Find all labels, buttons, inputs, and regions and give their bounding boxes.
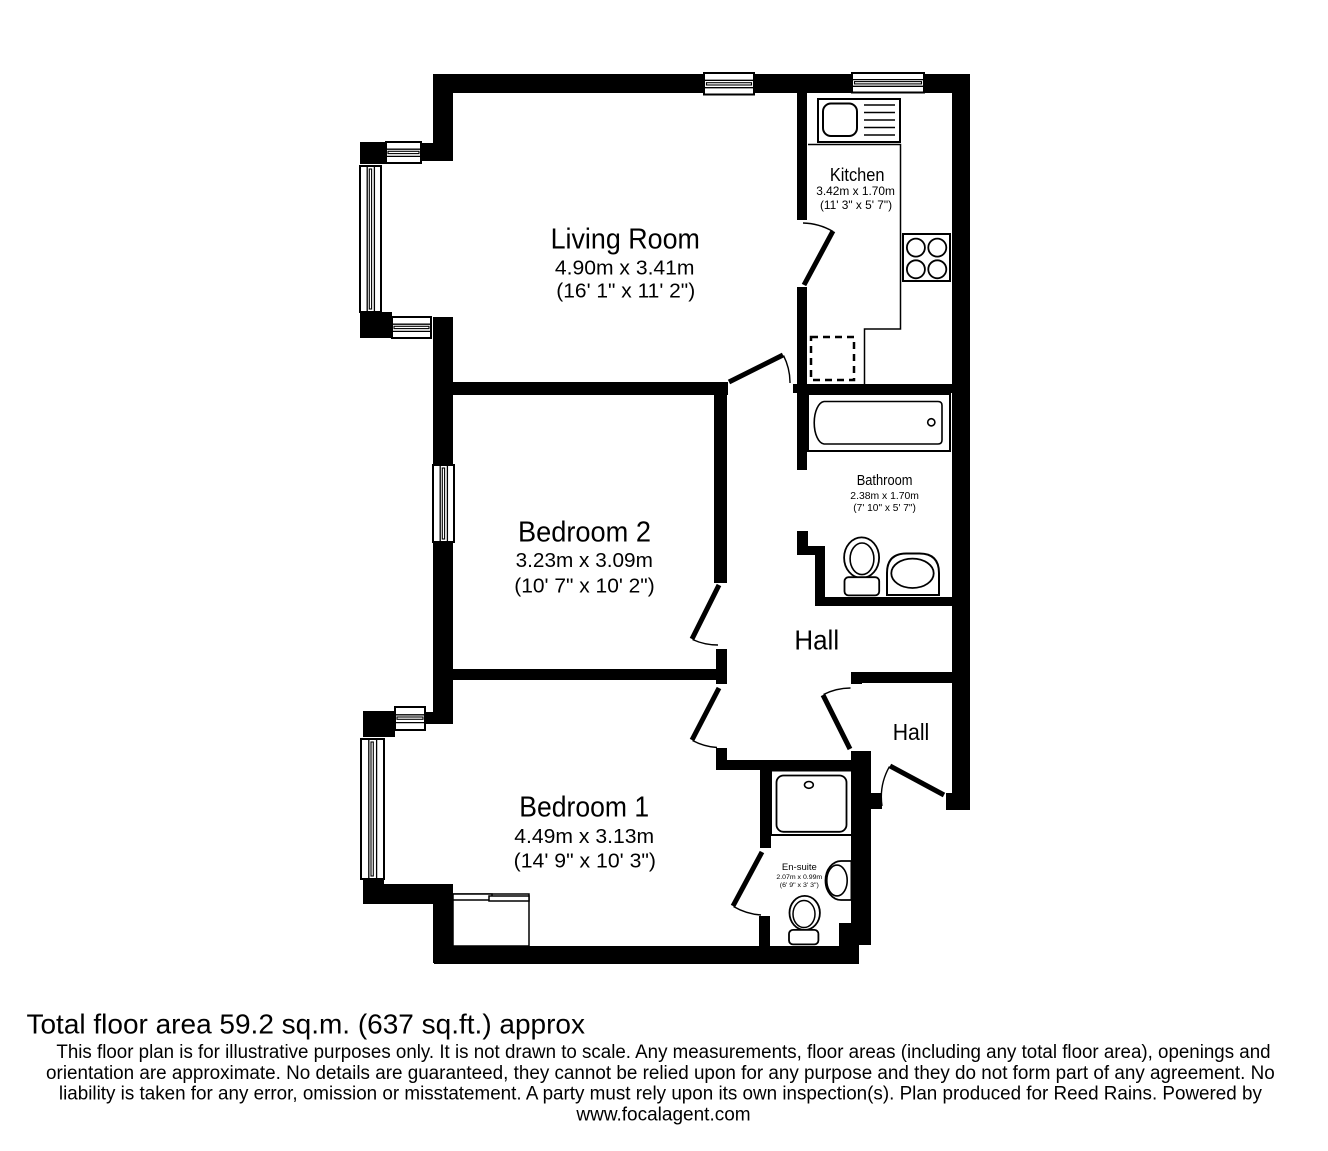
svg-text:3.42m x 1.70m: 3.42m x 1.70m bbox=[816, 184, 895, 198]
svg-text:Total floor area 59.2 sq.m. (6: Total floor area 59.2 sq.m. (637 sq.ft.)… bbox=[27, 1008, 586, 1039]
svg-text:Hall: Hall bbox=[794, 624, 839, 655]
svg-text:orientation are approximate. N: orientation are approximate. No details … bbox=[46, 1063, 1275, 1084]
svg-text:liability is taken for any err: liability is taken for any error, omissi… bbox=[59, 1084, 1262, 1105]
svg-text:www.focalagent.com: www.focalagent.com bbox=[575, 1105, 750, 1126]
svg-text:Hall: Hall bbox=[893, 719, 930, 745]
svg-text:Bedroom 2: Bedroom 2 bbox=[518, 516, 651, 548]
svg-text:Bathroom: Bathroom bbox=[857, 473, 913, 489]
svg-text:Kitchen: Kitchen bbox=[830, 165, 885, 185]
svg-text:3.23m x 3.09m: 3.23m x 3.09m bbox=[516, 550, 653, 572]
svg-text:2.07m x 0.99m: 2.07m x 0.99m bbox=[776, 874, 822, 881]
svg-text:Living Room: Living Room bbox=[551, 224, 700, 256]
svg-text:(16' 1" x 11' 2"): (16' 1" x 11' 2") bbox=[556, 281, 695, 303]
svg-text:(14' 9" x 10' 3"): (14' 9" x 10' 3") bbox=[514, 851, 656, 873]
svg-text:4.49m x 3.13m: 4.49m x 3.13m bbox=[514, 826, 654, 848]
svg-text:(6' 9" x 3' 3"): (6' 9" x 3' 3") bbox=[780, 882, 819, 889]
svg-text:Bedroom 1: Bedroom 1 bbox=[519, 792, 649, 824]
svg-text:(10' 7" x 10' 2"): (10' 7" x 10' 2") bbox=[514, 576, 654, 598]
svg-text:En-suite: En-suite bbox=[782, 862, 817, 872]
svg-text:2.38m x 1.70m: 2.38m x 1.70m bbox=[850, 491, 919, 502]
svg-text:(7' 10" x 5' 7"): (7' 10" x 5' 7") bbox=[853, 503, 916, 514]
svg-text:(11' 3" x 5' 7"): (11' 3" x 5' 7") bbox=[820, 198, 892, 212]
svg-text:4.90m x 3.41m: 4.90m x 3.41m bbox=[555, 257, 695, 279]
svg-text:This floor plan is for illustr: This floor plan is for illustrative purp… bbox=[56, 1042, 1270, 1063]
